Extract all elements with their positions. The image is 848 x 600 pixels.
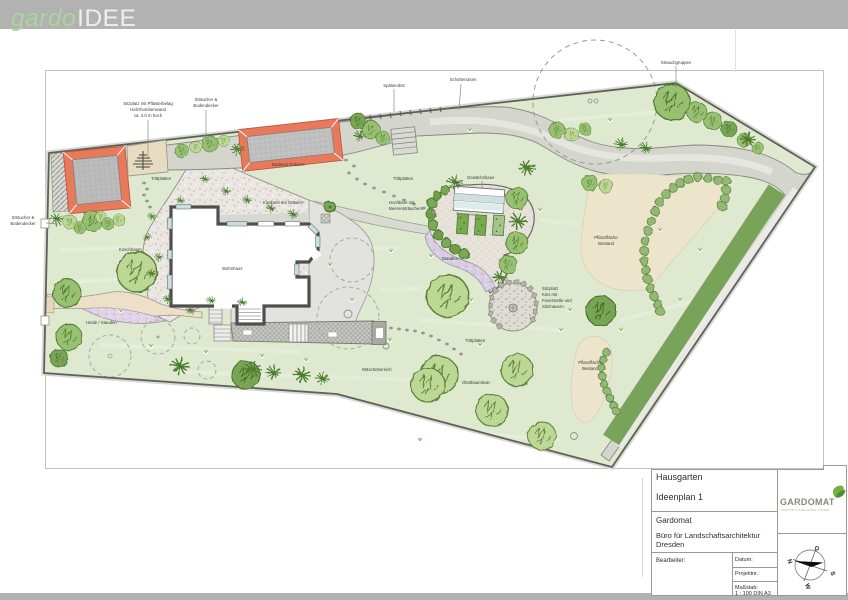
svg-text:Büro für Landschaftsarchitektu: Büro für Landschaftsarchitektur bbox=[656, 531, 761, 540]
svg-text:1 : 100 DIN A3: 1 : 100 DIN A3 bbox=[735, 591, 771, 597]
svg-text:Holzrhombenwand: Holzrhombenwand bbox=[130, 107, 166, 112]
svg-text:Pflanzfläche: Pflanzfläche bbox=[578, 360, 602, 365]
svg-text:Sträucher &: Sträucher & bbox=[12, 215, 35, 220]
svg-text:Projektnr.:: Projektnr.: bbox=[735, 571, 760, 577]
svg-text:Pflanzfläche: Pflanzfläche bbox=[594, 235, 618, 240]
svg-text:Trittplatten: Trittplatten bbox=[151, 176, 172, 181]
svg-text:Bearbeiter:: Bearbeiter: bbox=[656, 558, 686, 564]
svg-text:Strauchgruppen: Strauchgruppen bbox=[661, 60, 692, 65]
svg-text:Bestand: Bestand bbox=[598, 241, 614, 246]
svg-text:Ideenplan 1: Ideenplan 1 bbox=[656, 492, 703, 502]
svg-text:Hochbeet mit: Hochbeet mit bbox=[389, 200, 415, 205]
svg-text:Feuerstelle und: Feuerstelle und bbox=[542, 298, 572, 303]
svg-text:Bodemit Gräsern: Bodemit Gräsern bbox=[272, 162, 305, 167]
svg-text:Bestand: Bestand bbox=[582, 366, 598, 371]
svg-text:Stauden: Stauden bbox=[442, 256, 459, 261]
svg-text:Trittplatten: Trittplatten bbox=[393, 176, 414, 181]
svg-text:Gewächshaus: Gewächshaus bbox=[467, 175, 494, 180]
svg-text:ca. 2.0 m hoch: ca. 2.0 m hoch bbox=[134, 113, 163, 118]
svg-text:GARDOMAT: GARDOMAT bbox=[780, 497, 835, 507]
svg-text:Gardomat: Gardomat bbox=[656, 516, 692, 525]
svg-text:FRISCHE PLÄNE GRÜNE GÄRTEN: FRISCHE PLÄNE GRÜNE GÄRTEN bbox=[781, 509, 829, 512]
svg-text:Sitzmauern: Sitzmauern bbox=[542, 304, 564, 309]
svg-text:Trittplatten: Trittplatten bbox=[465, 338, 486, 343]
svg-text:Sitzplatz mit Pflasterbelag: Sitzplatz mit Pflasterbelag bbox=[123, 101, 173, 106]
svg-text:Kirschbaum: Kirschbaum bbox=[119, 247, 142, 252]
svg-text:Beerensträuchern: Beerensträuchern bbox=[389, 206, 424, 211]
svg-text:Sitzplatz: Sitzplatz bbox=[542, 286, 558, 291]
svg-text:Obstbaumhain: Obstbaumhain bbox=[462, 380, 491, 385]
svg-text:Datum:: Datum: bbox=[735, 557, 753, 563]
svg-text:Wäschebereich: Wäschebereich bbox=[362, 367, 392, 372]
svg-text:Hausgarten: Hausgarten bbox=[656, 472, 703, 482]
svg-text:Bodendecker: Bodendecker bbox=[193, 103, 219, 108]
svg-text:Kiesbeet mit Gräsern: Kiesbeet mit Gräsern bbox=[263, 200, 304, 205]
svg-text:Dresden: Dresden bbox=[656, 540, 684, 549]
svg-text:gardoIDEE: gardoIDEE bbox=[11, 5, 136, 32]
svg-text:Schotterrasen: Schotterrasen bbox=[450, 77, 477, 82]
svg-text:Kies mit: Kies mit bbox=[542, 292, 558, 297]
svg-text:Heide / Stauden: Heide / Stauden bbox=[86, 320, 117, 325]
svg-text:Bodendecker: Bodendecker bbox=[10, 221, 36, 226]
svg-text:Wohnhaus: Wohnhaus bbox=[222, 266, 242, 271]
svg-text:Spalierobst: Spalierobst bbox=[383, 83, 405, 88]
svg-text:Sträucher &: Sträucher & bbox=[195, 97, 218, 102]
